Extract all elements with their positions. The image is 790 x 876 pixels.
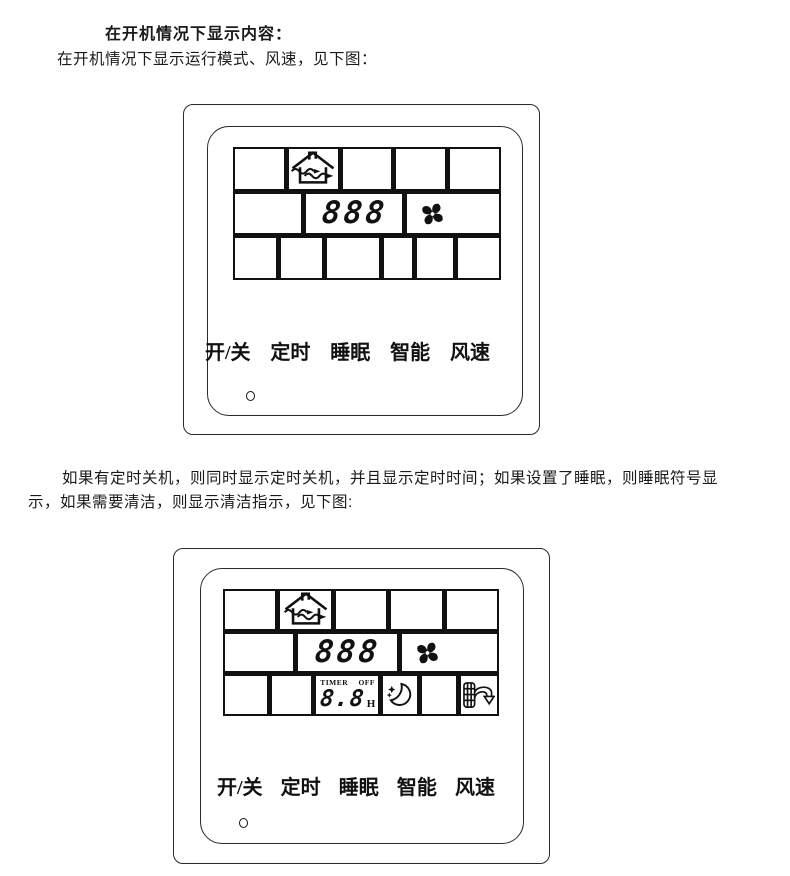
lcd-segment-blank xyxy=(391,591,441,629)
lcd-clean-segment xyxy=(461,676,498,714)
body-paragraph: 如果有定时关机，则同时显示定时关机，并且显示定时时间；如果设置了睡眠，则睡眠符号… xyxy=(28,467,746,515)
indicator-led-dot xyxy=(246,391,255,401)
controller-panel-timer-state: 888 xyxy=(173,548,550,864)
lcd-temperature-readout: 888 xyxy=(298,634,397,672)
fan-blades-icon xyxy=(412,638,443,668)
sleep-button[interactable]: 睡眠 xyxy=(339,771,379,800)
indicator-led-dot xyxy=(239,818,248,828)
manual-page: 在开机情况下显示内容： 在开机情况下显示运行模式、风速，见下图： xyxy=(0,0,790,876)
intro-text: 在开机情况下显示运行模式、风速，见下图： xyxy=(57,47,377,69)
lcd-segment-blank xyxy=(396,149,445,189)
filter-clean-icon xyxy=(462,680,495,711)
fan-speed-button[interactable]: 风速 xyxy=(455,771,495,800)
house-airflow-icon xyxy=(284,591,328,628)
power-button[interactable]: 开/关 xyxy=(205,336,251,365)
lcd-row-top xyxy=(235,149,499,189)
sleep-button[interactable]: 睡眠 xyxy=(330,336,370,365)
seven-segment-digits: 888 xyxy=(314,637,382,668)
timer-hours-digits: 8.8 xyxy=(319,688,366,711)
lcd-segment-blank xyxy=(384,238,412,278)
moon-stars-icon xyxy=(385,681,414,710)
fan-speed-button[interactable]: 风速 xyxy=(450,336,490,365)
seven-segment-digits: 888 xyxy=(320,198,388,229)
section-heading: 在开机情况下显示内容： xyxy=(105,20,292,44)
lcd-segment-blank xyxy=(235,149,284,189)
smart-button[interactable]: 智能 xyxy=(390,336,430,365)
lcd-display: 888 xyxy=(233,147,501,280)
lcd-segment-blank xyxy=(447,591,497,629)
timer-button[interactable]: 定时 xyxy=(281,771,321,800)
lcd-fan-speed-segment xyxy=(402,634,497,672)
lcd-segment-blank xyxy=(327,238,379,278)
lcd-segment-blank xyxy=(417,238,453,278)
lcd-segment-blank xyxy=(272,676,311,714)
button-label-row: 开/关 定时 睡眠 智能 风速 xyxy=(205,336,490,365)
lcd-row-middle: 888 xyxy=(225,634,497,672)
lcd-display: 888 xyxy=(223,589,499,716)
lcd-segment-blank xyxy=(422,676,456,714)
lcd-segment-blank xyxy=(225,591,275,629)
controller-panel-on-state: 888 xyxy=(183,104,540,435)
house-airflow-icon xyxy=(291,150,335,187)
fan-blades-icon xyxy=(417,199,448,229)
lcd-segment-blank xyxy=(225,676,267,714)
lcd-segment-blank xyxy=(225,634,293,672)
lcd-segment-mode xyxy=(289,149,338,189)
lcd-fan-speed-segment xyxy=(407,194,499,234)
smart-button[interactable]: 智能 xyxy=(397,771,437,800)
lcd-sleep-segment xyxy=(383,676,417,714)
lcd-segment-mode xyxy=(280,591,330,629)
lcd-timer-off-segment: TIMER OFF 8.8 H xyxy=(316,676,378,714)
lcd-temperature-readout: 888 xyxy=(306,194,402,234)
lcd-segment-blank xyxy=(281,238,322,278)
timer-button[interactable]: 定时 xyxy=(270,336,310,365)
lcd-row-top xyxy=(225,591,497,629)
lcd-segment-blank xyxy=(336,591,386,629)
lcd-segment-blank xyxy=(235,238,276,278)
power-button[interactable]: 开/关 xyxy=(217,771,263,800)
lcd-segment-blank xyxy=(450,149,499,189)
lcd-row-middle: 888 xyxy=(235,194,499,234)
lcd-row-bottom: TIMER OFF 8.8 H xyxy=(225,676,497,714)
lcd-row-bottom xyxy=(235,238,499,278)
lcd-segment-blank xyxy=(343,149,392,189)
lcd-segment-blank xyxy=(458,238,499,278)
lcd-segment-blank xyxy=(235,194,301,234)
button-label-row: 开/关 定时 睡眠 智能 风速 xyxy=(217,771,495,800)
timer-hours-unit: H xyxy=(367,698,376,710)
